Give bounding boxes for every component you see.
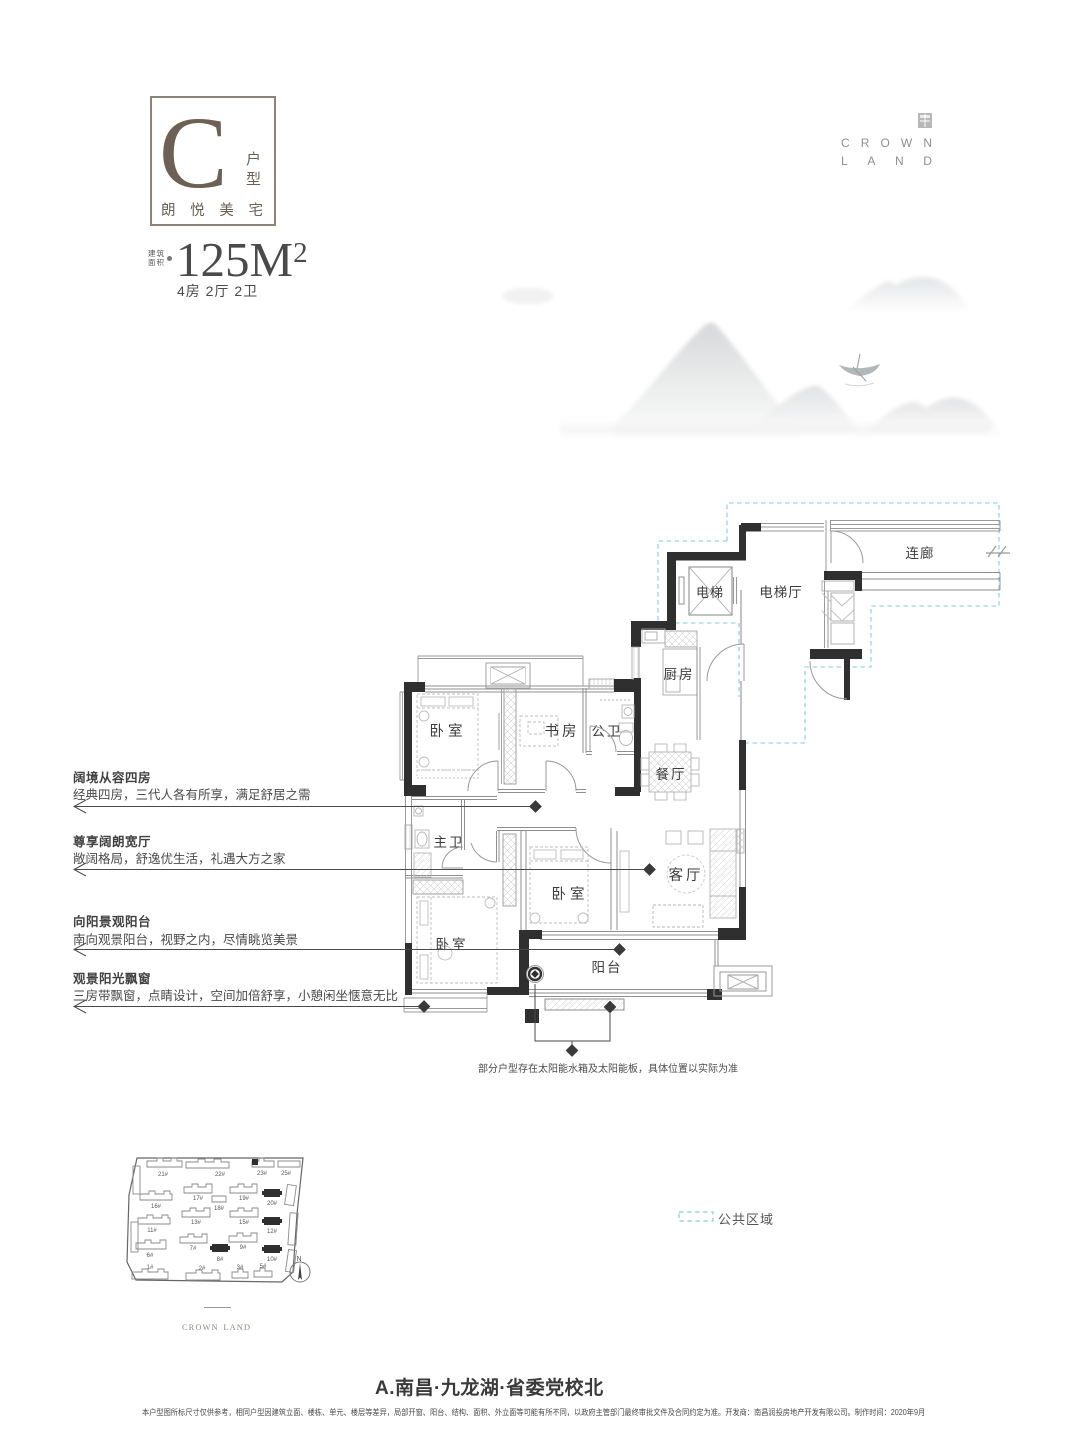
svg-text:22#: 22# [215,1172,226,1178]
svg-text:25#: 25# [281,1171,292,1177]
svg-text:10#: 10# [267,1257,278,1263]
svg-text:21#: 21# [158,1172,169,1178]
svg-text:阳台: 阳台 [592,960,623,975]
svg-text:1#: 1# [147,1265,154,1271]
svg-text:12#: 12# [267,1229,278,1235]
svg-text:20#: 20# [267,1201,278,1207]
svg-text:5#: 5# [260,1264,267,1270]
svg-text:15#: 15# [239,1220,250,1226]
svg-text:书房: 书房 [545,723,580,740]
svg-text:电梯厅: 电梯厅 [759,585,803,600]
svg-text:11#: 11# [147,1228,157,1234]
svg-text:N: N [296,1256,301,1263]
svg-text:部分户型存在太阳能水箱及太阳能板，具体位置以实际为准: 部分户型存在太阳能水箱及太阳能板，具体位置以实际为准 [478,1062,738,1075]
svg-text:卧室: 卧室 [430,723,467,740]
svg-text:6#: 6# [147,1253,154,1259]
svg-text:餐厅: 餐厅 [656,767,687,782]
svg-text:2#: 2# [199,1266,206,1272]
svg-text:16#: 16# [151,1204,162,1210]
svg-text:19#: 19# [239,1196,250,1202]
svg-text:7#: 7# [190,1246,197,1252]
svg-text:23#: 23# [257,1171,268,1177]
svg-text:卧室: 卧室 [552,886,589,903]
svg-text:电梯: 电梯 [696,585,724,600]
svg-text:连廊: 连廊 [906,545,935,561]
svg-text:17#: 17# [193,1196,204,1202]
svg-text:13#: 13# [191,1220,202,1226]
svg-text:主卫: 主卫 [434,835,465,850]
svg-text:8#: 8# [217,1257,224,1263]
svg-text:厨房: 厨房 [664,667,695,682]
svg-text:18#: 18# [214,1206,225,1212]
svg-text:客厅: 客厅 [669,867,704,884]
svg-text:3#: 3# [237,1265,244,1271]
svg-text:9#: 9# [240,1245,247,1251]
